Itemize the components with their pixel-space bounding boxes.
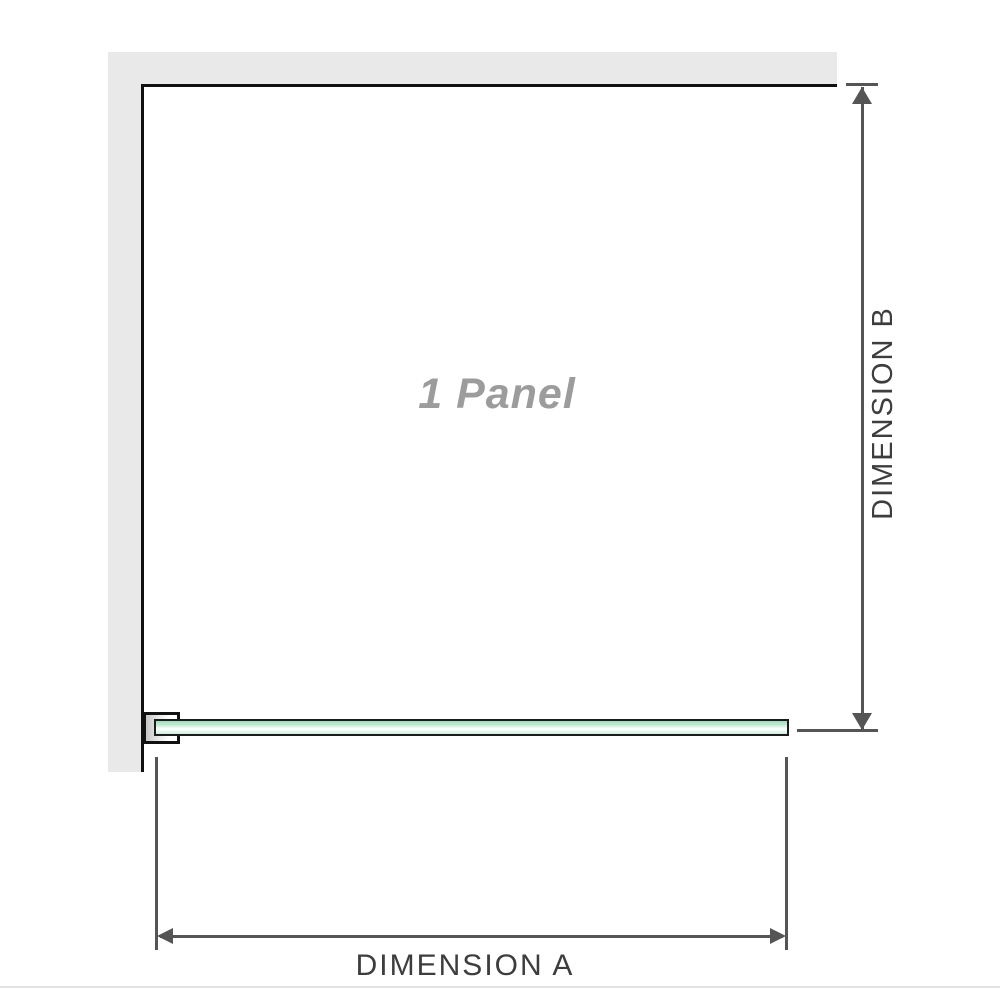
glass-panel	[154, 719, 789, 736]
top-wall-inner-edge	[141, 84, 837, 87]
dimension-a-extension-left	[155, 757, 158, 950]
dimension-b-line	[861, 87, 864, 730]
dimension-a-label: DIMENSION A	[315, 948, 615, 984]
arrow-down-icon	[852, 713, 872, 730]
dimension-b-label: DIMENSION B	[867, 283, 899, 543]
panel-count-label: 1 Panel	[377, 368, 617, 420]
arrow-left-icon	[157, 928, 173, 944]
top-wall	[108, 52, 837, 86]
diagram-canvas: 1 Panel DIMENSION B DIMENSION A	[0, 0, 1000, 1000]
dimension-a-line	[160, 935, 783, 938]
left-wall-inner-edge	[141, 84, 144, 772]
dimension-a-extension-right	[785, 757, 788, 950]
arrow-up-icon	[852, 87, 872, 104]
dimension-b-top-tick	[846, 83, 878, 86]
page-bottom-rule	[0, 986, 1000, 988]
arrow-right-icon	[770, 928, 786, 944]
left-wall	[108, 52, 143, 772]
